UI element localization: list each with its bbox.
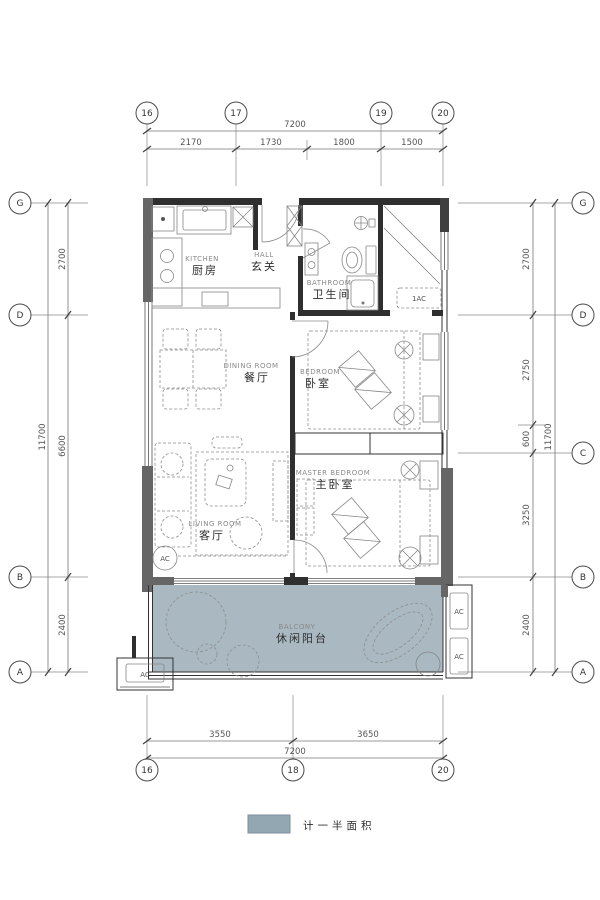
grid-bubble-17-top: 17	[225, 102, 247, 124]
grid-bubble-B-left: B	[9, 566, 31, 588]
living-room: AC LIVING ROOM 客厅	[153, 437, 288, 570]
bedroom: BEDROOM 卧室	[300, 331, 439, 429]
bathroom-label-zh: 卫生间	[313, 287, 352, 301]
dim-bottom-seg: 3650	[357, 730, 379, 740]
grid-bubble-A-right: A	[572, 661, 594, 683]
svg-text:16: 16	[141, 766, 153, 776]
svg-text:D: D	[17, 311, 24, 321]
dim-right-seg: 3250	[522, 504, 532, 526]
dim-left-overall: 11700	[38, 423, 48, 450]
dining-label-zh: 餐厅	[244, 370, 270, 384]
grid-bubble-16-bottom: 16	[136, 759, 158, 781]
fan-coil-icon	[401, 461, 419, 479]
svg-text:16: 16	[141, 109, 153, 119]
balcony-label-zh: 休闲阳台	[276, 631, 328, 645]
grid-bubble-G-right: G	[572, 192, 594, 214]
balcony-label-en: BALCONY	[279, 623, 316, 631]
dim-top-seg: 1800	[333, 138, 355, 148]
balcony-ac-label-bottom: AC	[454, 653, 464, 661]
svg-text:A: A	[17, 668, 24, 678]
grid-bubble-16-top: 16	[136, 102, 158, 124]
grid-bubble-A-left: A	[9, 661, 31, 683]
svg-text:G: G	[17, 199, 24, 209]
legend: 计一半面积	[248, 815, 376, 833]
floor-plan-svg: 7200 2170 1730 1800 1500 16 17 19 20 117…	[0, 0, 600, 900]
living-label-zh: 客厅	[199, 528, 225, 542]
grid-bubble-C-right: C	[572, 442, 594, 464]
dim-bottom-seg: 3550	[209, 730, 231, 740]
closet: 1AC	[384, 206, 441, 308]
grid-bubble-D-left: D	[9, 304, 31, 326]
svg-text:B: B	[580, 573, 586, 583]
right-dimensions: 2700 2750 600 3250 2400 11700 G D C B A	[458, 192, 594, 683]
grid-bubble-19-top: 19	[370, 102, 392, 124]
svg-text:AC: AC	[160, 555, 170, 563]
living-label-en: LIVING ROOM	[188, 520, 241, 528]
dim-right-seg: 2700	[522, 248, 532, 270]
legend-swatch	[248, 815, 290, 833]
svg-text:G: G	[580, 199, 587, 209]
dim-right-seg: 2750	[522, 359, 532, 381]
closet-ac-label: 1AC	[412, 295, 426, 303]
grid-bubble-G-left: G	[9, 192, 31, 214]
dim-top-overall: 7200	[284, 120, 306, 130]
ac-compartment: AC AC	[441, 585, 472, 678]
svg-text:18: 18	[287, 766, 299, 776]
dim-left-seg: 2400	[58, 614, 68, 636]
grid-bubble-18-bottom: 18	[282, 759, 304, 781]
floor-plan-page: 7200 2170 1730 1800 1500 16 17 19 20 117…	[0, 0, 600, 900]
dim-top-seg: 1500	[401, 138, 423, 148]
outdoor-ac-label: AC	[140, 671, 150, 679]
dining-label-en: DINING ROOM	[223, 362, 278, 370]
bedroom-label-en: BEDROOM	[300, 368, 340, 376]
grid-bubble-20-top: 20	[432, 102, 454, 124]
svg-text:A: A	[580, 668, 587, 678]
svg-text:D: D	[580, 311, 587, 321]
master-bedroom: MASTER BEDROOM 主卧室	[296, 461, 438, 569]
svg-text:20: 20	[437, 766, 449, 776]
dim-right-seg: 2400	[522, 614, 532, 636]
svg-text:C: C	[580, 449, 586, 459]
floor-plan: KITCHEN 厨房 HALL 玄关 BATHROOM 卫生间 1AC	[117, 198, 472, 690]
grid-bubble-B-right: B	[572, 566, 594, 588]
dim-left-seg: 2700	[58, 248, 68, 270]
master-bedroom-label-zh: 主卧室	[316, 477, 355, 491]
bedroom-label-zh: 卧室	[305, 376, 331, 390]
kitchen-label-zh: 厨房	[192, 264, 218, 277]
dim-top-seg: 2170	[180, 138, 202, 148]
dim-right-overall: 11700	[544, 423, 554, 450]
master-bedroom-label-en: MASTER BEDROOM	[296, 469, 371, 477]
ac-indicator: AC	[153, 546, 288, 570]
top-dimensions: 7200 2170 1730 1800 1500 16 17 19 20	[136, 102, 454, 186]
svg-text:17: 17	[230, 109, 241, 119]
kitchen-label-en: KITCHEN	[185, 255, 219, 263]
hall-label-en: HALL	[254, 251, 274, 259]
svg-text:19: 19	[375, 109, 387, 119]
dim-right-seg: 600	[522, 431, 532, 447]
grid-bubble-D-right: D	[572, 304, 594, 326]
bottom-dimensions: 3550 3650 7200 16 18 20	[136, 695, 454, 781]
hall-label-zh: 玄关	[251, 259, 277, 273]
svg-text:20: 20	[437, 109, 449, 119]
dim-top-seg: 1730	[260, 138, 282, 148]
wardrobe	[295, 433, 443, 454]
svg-text:B: B	[17, 573, 23, 583]
dim-left-seg: 6600	[58, 435, 68, 457]
bathroom-label-en: BATHROOM	[307, 279, 352, 287]
balcony-ac-label-top: AC	[454, 608, 464, 616]
grid-bubble-20-bottom: 20	[432, 759, 454, 781]
legend-label: 计一半面积	[303, 819, 376, 832]
left-dimensions: 11700 2700 6600 2400 G D B A	[9, 192, 88, 683]
dim-bottom-overall: 7200	[284, 747, 306, 757]
bathroom: BATHROOM 卫生间	[305, 217, 378, 311]
dining-room: DINING ROOM 餐厅	[160, 329, 279, 409]
